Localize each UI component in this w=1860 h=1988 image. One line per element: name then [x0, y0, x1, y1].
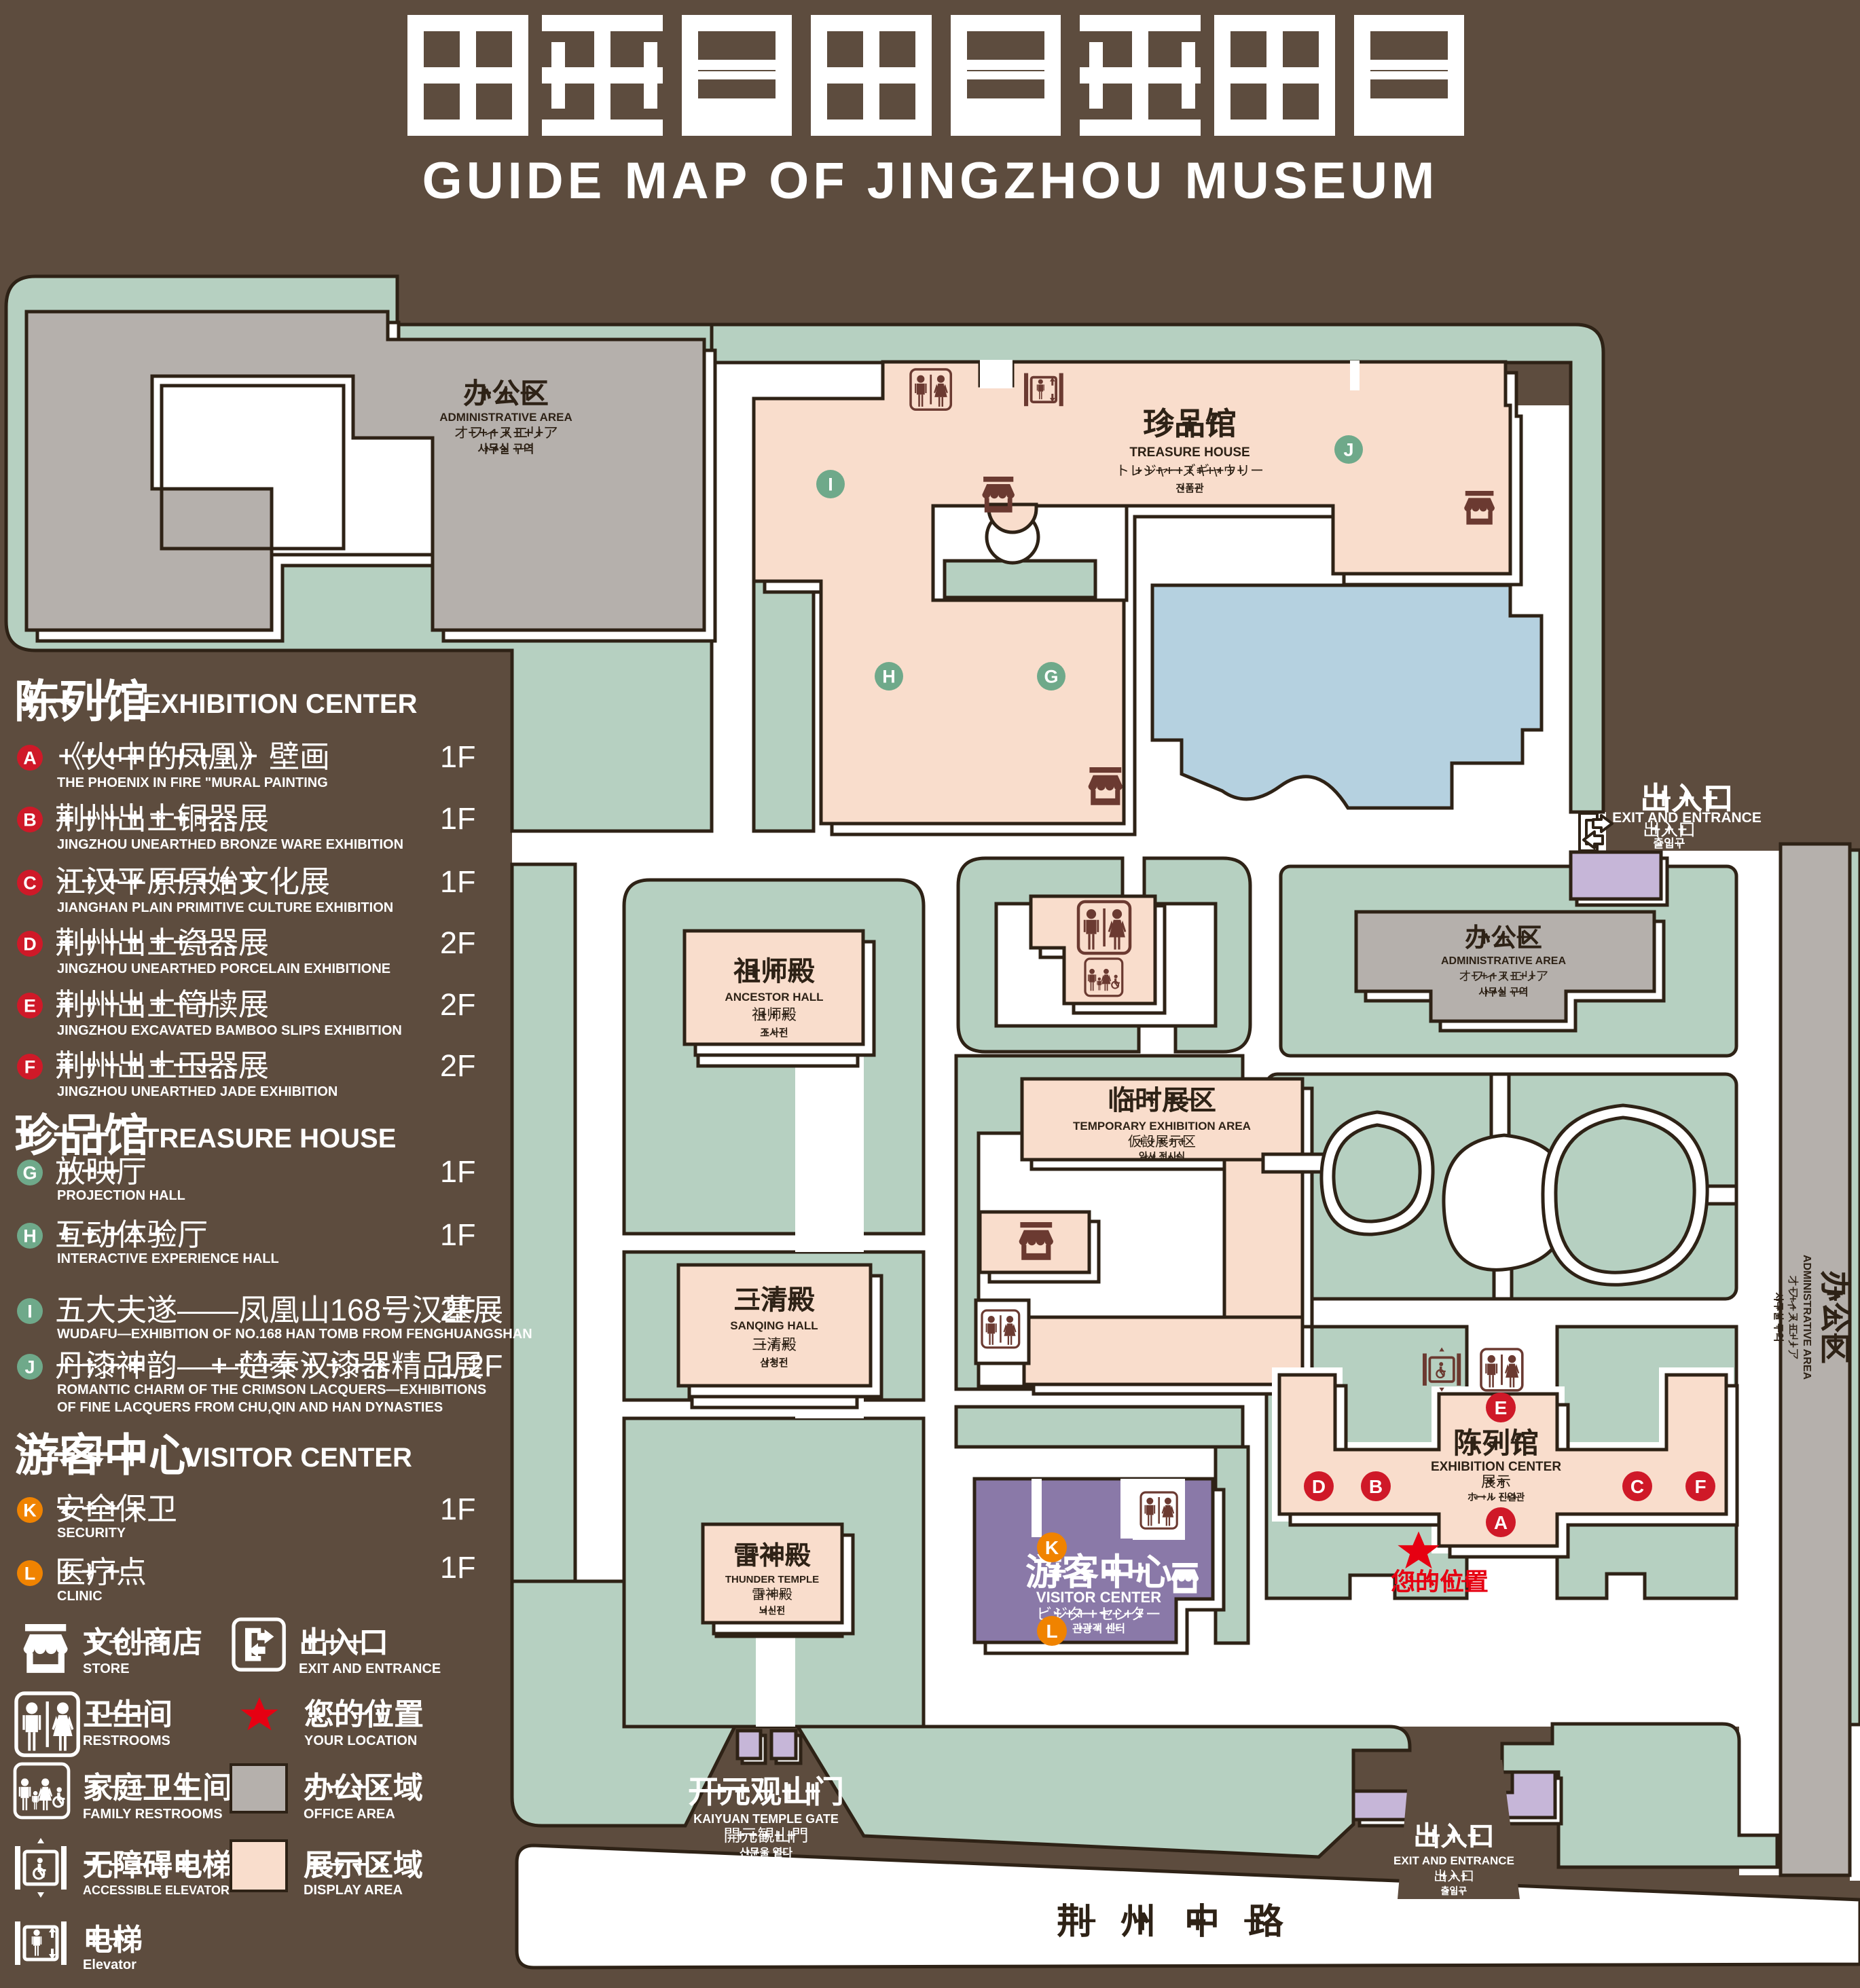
svg-text:DISPLAY AREA: DISPLAY AREA — [304, 1883, 403, 1898]
svg-text:无障碍电梯: 无障碍电梯 — [83, 1849, 232, 1882]
svg-text:THE PHOENIX IN FIRE "MURAL PAI: THE PHOENIX IN FIRE "MURAL PAINTING — [57, 775, 328, 790]
svg-text:OFFICE AREA: OFFICE AREA — [304, 1807, 395, 1822]
svg-text:1F: 1F — [440, 864, 476, 899]
svg-text:出入口: 出入口 — [299, 1626, 388, 1659]
svg-text:ACCESSIBLE ELEVATOR: ACCESSIBLE ELEVATOR — [83, 1883, 230, 1897]
svg-text:荆州出土铜器展: 荆州出土铜器展 — [55, 801, 269, 836]
svg-text:FAMILY RESTROOMS: FAMILY RESTROOMS — [83, 1807, 223, 1822]
svg-text:祖师殿: 祖师殿 — [733, 957, 815, 987]
svg-text:三清殿: 三清殿 — [752, 1336, 797, 1353]
svg-text:出入口: 出入口 — [1413, 1822, 1495, 1852]
svg-text:1F: 1F — [440, 1492, 476, 1526]
svg-text:陈列馆: 陈列馆 — [14, 676, 149, 726]
svg-text:YOUR LOCATION: YOUR LOCATION — [304, 1733, 417, 1748]
svg-text:H: H — [23, 1226, 37, 1247]
svg-text:办公区: 办公区 — [1465, 924, 1542, 953]
svg-text:J: J — [1343, 440, 1353, 460]
svg-text:J: J — [24, 1357, 35, 1378]
svg-text:INTERACTIVE EXPERIENCE HALL: INTERACTIVE EXPERIENCE HALL — [57, 1251, 279, 1266]
svg-text:祖师殿: 祖师殿 — [752, 1006, 797, 1023]
svg-text:雷神殿: 雷神殿 — [733, 1542, 811, 1570]
svg-text:1F: 1F — [440, 801, 476, 836]
svg-text:PROJECTION HALL: PROJECTION HALL — [57, 1188, 185, 1203]
svg-text:ADMINISTRATIVE AREA: ADMINISTRATIVE AREA — [439, 411, 572, 424]
svg-text:L: L — [1046, 1621, 1057, 1642]
svg-text:K: K — [1045, 1537, 1059, 1558]
svg-text:F: F — [24, 1057, 36, 1078]
svg-text:1F: 1F — [440, 739, 476, 774]
svg-text:荆州出土简牍展: 荆州出土简牍展 — [55, 987, 269, 1022]
svg-text:L: L — [24, 1564, 36, 1584]
svg-text:B: B — [23, 810, 37, 830]
svg-text:ROMANTIC CHARM OF THE CRIMSON: ROMANTIC CHARM OF THE CRIMSON LACQUERS—E… — [57, 1382, 486, 1397]
svg-text:THUNDER TEMPLE: THUNDER TEMPLE — [725, 1574, 819, 1585]
svg-text:荆州出土玉器展: 荆州出土玉器展 — [55, 1048, 269, 1083]
svg-text:I: I — [828, 475, 833, 495]
svg-text:陈列馆: 陈列馆 — [1453, 1427, 1539, 1459]
svg-text:办公区域: 办公区域 — [304, 1771, 423, 1805]
svg-text:ADMINISTRATIVE AREA: ADMINISTRATIVE AREA — [1441, 955, 1566, 967]
svg-text:A: A — [1494, 1512, 1508, 1533]
svg-text:放映厅: 放映厅 — [55, 1154, 147, 1189]
svg-text:2F: 2F — [440, 1048, 476, 1083]
svg-text:산문을 열다: 산문을 열다 — [740, 1847, 792, 1859]
svg-text:JINGZHOU UNEARTHED PORCELAIN E: JINGZHOU UNEARTHED PORCELAIN EXHIBITIONE — [57, 961, 390, 976]
svg-text:임시 전시실: 임시 전시실 — [1139, 1151, 1185, 1162]
svg-text:조사전: 조사전 — [760, 1027, 788, 1039]
svg-text:您的位置: 您的位置 — [1391, 1568, 1489, 1596]
svg-text:VISITOR CENTER: VISITOR CENTER — [185, 1443, 412, 1473]
svg-text:丹漆神韵——楚秦汉漆器精品展: 丹漆神韵——楚秦汉漆器精品展 — [55, 1348, 483, 1383]
svg-text:1F: 1F — [440, 1154, 476, 1189]
svg-text:雷神殿: 雷神殿 — [752, 1587, 792, 1602]
svg-text:电梯: 电梯 — [83, 1923, 143, 1957]
svg-text:JIANGHAN PLAIN PRIMITIVE CULTU: JIANGHAN PLAIN PRIMITIVE CULTURE EXHIBIT… — [57, 900, 393, 915]
svg-text:荆州中路: 荆州中路 — [1057, 1902, 1312, 1942]
svg-text:开元观山门: 开元观山门 — [688, 1774, 844, 1809]
svg-text:C: C — [1630, 1476, 1644, 1497]
svg-text:A: A — [23, 748, 37, 769]
svg-text:仮設展示区: 仮設展示区 — [1128, 1134, 1196, 1149]
svg-text:文创商店: 文创商店 — [83, 1626, 202, 1659]
svg-text:VISITOR CENTER: VISITOR CENTER — [1036, 1589, 1161, 1606]
svg-text:E: E — [1495, 1397, 1508, 1418]
svg-text:家庭卫生间: 家庭卫生间 — [83, 1771, 232, 1805]
svg-text:뇌신전: 뇌신전 — [759, 1605, 786, 1616]
svg-text:オフィスエリア: オフィスエリア — [454, 424, 558, 441]
svg-text:SECURITY: SECURITY — [57, 1526, 126, 1541]
svg-text:KAIYUAN TEMPLE GATE: KAIYUAN TEMPLE GATE — [693, 1812, 839, 1826]
svg-text:JINGZHOU EXCAVATED BAMBOO SLIP: JINGZHOU EXCAVATED BAMBOO SLIPS EXHIBITI… — [57, 1023, 402, 1038]
svg-text:사무실 구역: 사무실 구역 — [1478, 987, 1528, 998]
svg-text:トレジャーズギャウリー: トレジャーズギャウリー — [1116, 463, 1264, 479]
svg-text:オフィスエリア: オフィスエリア — [1459, 970, 1549, 984]
svg-text:TREASURE HOUSE: TREASURE HOUSE — [143, 1124, 396, 1154]
svg-text:C: C — [23, 873, 37, 894]
svg-text:医疗点: 医疗点 — [55, 1555, 147, 1589]
svg-text:OF FINE LACQUERS FROM CHU,QIN: OF FINE LACQUERS FROM CHU,QIN AND HAN DY… — [57, 1400, 443, 1415]
svg-text:ADMINISTRATIVE AREA: ADMINISTRATIVE AREA — [1801, 1255, 1812, 1380]
svg-text:卫生间: 卫生间 — [83, 1698, 172, 1731]
svg-text:진품관: 진품관 — [1175, 483, 1204, 494]
svg-text:三清殿: 三清殿 — [733, 1285, 815, 1315]
svg-text:RESTROOMS: RESTROOMS — [83, 1733, 170, 1748]
svg-text:EXHIBITION CENTER: EXHIBITION CENTER — [1431, 1460, 1561, 1474]
svg-text:2F: 2F — [440, 987, 476, 1022]
svg-text:EXHIBITION CENTER: EXHIBITION CENTER — [143, 689, 418, 719]
svg-text:珍品馆: 珍品馆 — [1143, 406, 1237, 441]
svg-text:2F: 2F — [440, 1293, 476, 1327]
svg-text:ANCESTOR HALL: ANCESTOR HALL — [725, 991, 823, 1004]
svg-text:K: K — [23, 1501, 37, 1521]
svg-text:E: E — [24, 996, 36, 1016]
svg-text:Elevator: Elevator — [83, 1957, 136, 1972]
svg-text:1-2F: 1-2F — [440, 1348, 503, 1383]
svg-text:江汉平原原始文化展: 江汉平原原始文化展 — [55, 864, 330, 899]
svg-text:安全保卫: 安全保卫 — [55, 1492, 177, 1526]
svg-text:B: B — [1369, 1476, 1383, 1497]
svg-text:G: G — [1044, 667, 1058, 687]
svg-text:EXIT AND ENTRANCE: EXIT AND ENTRANCE — [299, 1661, 441, 1676]
svg-text:您的位置: 您的位置 — [304, 1698, 424, 1731]
svg-text:사무실 구역: 사무실 구역 — [1772, 1292, 1784, 1342]
svg-text:展示: 展示 — [1481, 1473, 1511, 1490]
svg-text:I: I — [27, 1302, 33, 1322]
svg-text:삼청전: 삼청전 — [760, 1357, 788, 1369]
svg-text:사무실 구역: 사무실 구역 — [478, 443, 534, 456]
svg-text:CLINIC: CLINIC — [57, 1589, 103, 1604]
svg-text:D: D — [1312, 1476, 1326, 1497]
svg-text:WUDAFU—EXHIBITION OF NO.168 HA: WUDAFU—EXHIBITION OF NO.168 HAN TOMB FRO… — [57, 1327, 532, 1342]
svg-text:出入口: 出入口 — [1434, 1869, 1474, 1884]
svg-text:출입구: 출입구 — [1441, 1885, 1467, 1896]
svg-text:출입구: 출입구 — [1654, 837, 1685, 850]
svg-text:GUIDE MAP OF JINGZHOU MUSEUM: GUIDE MAP OF JINGZHOU MUSEUM — [422, 152, 1439, 210]
svg-text:D: D — [23, 934, 37, 955]
svg-text:临时展区: 临时展区 — [1108, 1086, 1216, 1116]
svg-text:游客中心: 游客中心 — [14, 1430, 194, 1480]
svg-text:2F: 2F — [440, 925, 476, 960]
svg-text:荆州出土瓷器展: 荆州出土瓷器展 — [55, 925, 269, 960]
svg-text:TREASURE HOUSE: TREASURE HOUSE — [1129, 445, 1250, 460]
svg-text:オフィスエリア: オフィスエリア — [1786, 1274, 1800, 1360]
svg-text:EXIT AND ENTRANCE: EXIT AND ENTRANCE — [1393, 1854, 1514, 1867]
svg-text:五大夫遂——凤凰山168号汉墓展: 五大夫遂——凤凰山168号汉墓展 — [55, 1293, 503, 1327]
svg-text:ホール 진열관: ホール 진열관 — [1467, 1492, 1525, 1503]
svg-text:G: G — [22, 1163, 37, 1183]
svg-text:《火中的凤凰》壁画: 《火中的凤凰》壁画 — [55, 739, 330, 774]
svg-text:JINGZHOU UNEARTHED BRONZE WARE: JINGZHOU UNEARTHED BRONZE WARE EXHIBITIO… — [57, 837, 403, 852]
svg-text:開元観山門: 開元観山門 — [723, 1826, 808, 1845]
svg-text:SANQING HALL: SANQING HALL — [730, 1319, 818, 1332]
svg-text:办公区: 办公区 — [1817, 1270, 1853, 1364]
svg-text:1F: 1F — [440, 1217, 476, 1252]
svg-text:办公区: 办公区 — [463, 378, 549, 409]
svg-text:F: F — [1694, 1476, 1706, 1497]
svg-text:展示区域: 展示区域 — [304, 1849, 423, 1882]
svg-text:1F: 1F — [440, 1550, 476, 1585]
svg-text:H: H — [882, 667, 896, 687]
svg-text:TEMPORARY EXHIBITION AREA: TEMPORARY EXHIBITION AREA — [1073, 1120, 1251, 1133]
svg-text:STORE: STORE — [83, 1661, 130, 1676]
svg-text:관광객 센터: 관광객 센터 — [1072, 1622, 1125, 1635]
svg-text:互动体验厅: 互动体验厅 — [55, 1217, 208, 1252]
svg-text:珍品馆: 珍品馆 — [14, 1110, 149, 1160]
svg-text:JINGZHOU UNEARTHED JADE EXHIBI: JINGZHOU UNEARTHED JADE EXHIBITION — [57, 1084, 338, 1099]
